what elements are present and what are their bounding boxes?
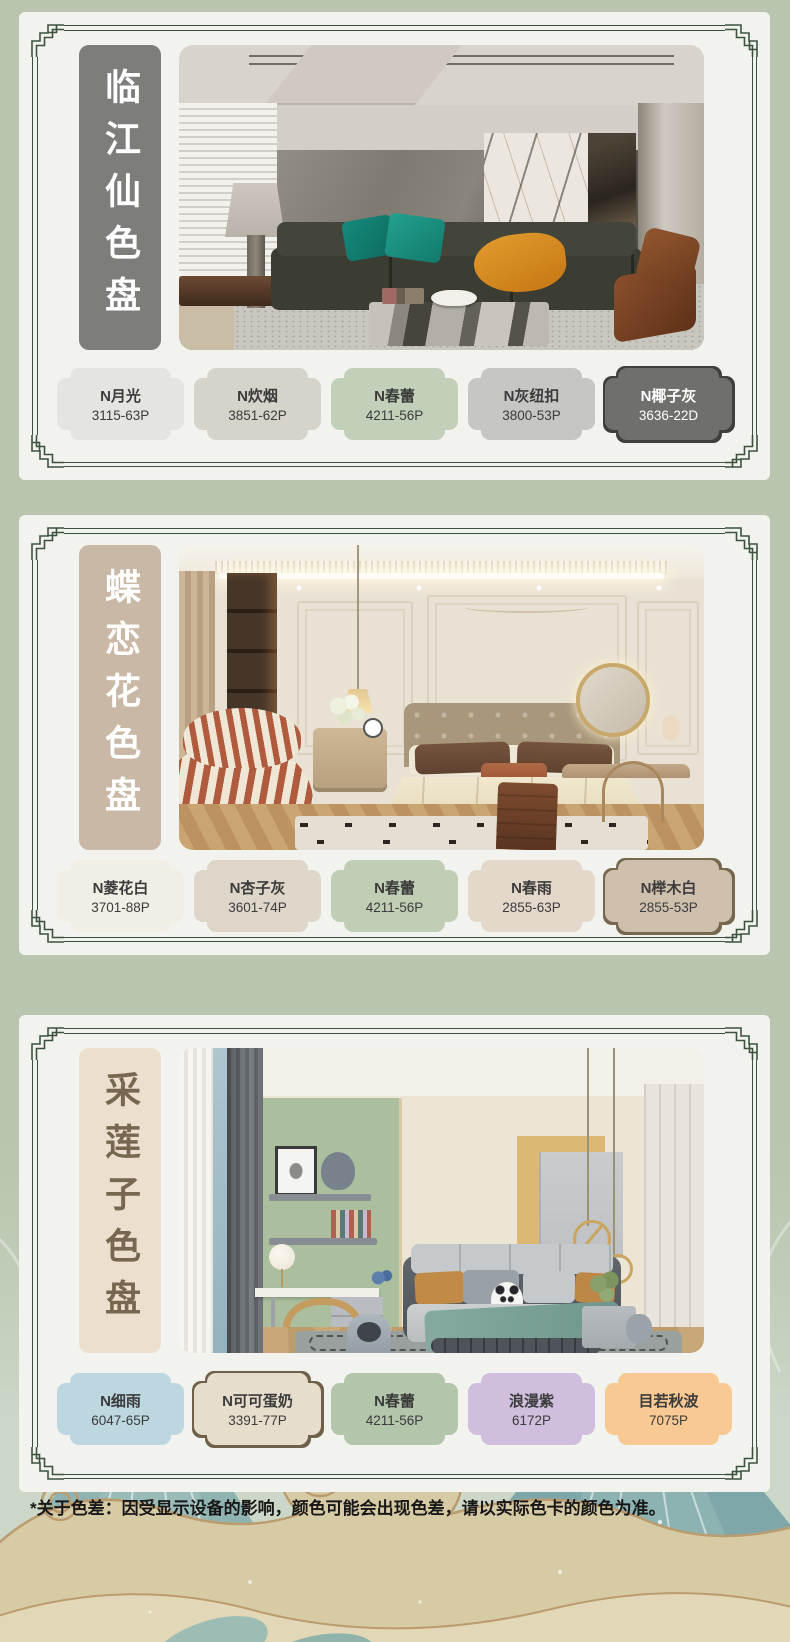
elephant-toy [626, 1314, 652, 1344]
color-code: 2855-63P [502, 900, 561, 915]
color-swatch: N椰子灰 3636-22D [605, 368, 732, 440]
ceiling-bulkhead [266, 45, 461, 103]
color-code: 3851-62P [228, 408, 287, 423]
swatch-text: N春蕾 4211-56P [331, 368, 458, 440]
swatch-row: N月光 3115-63P N炊烟 3851-62P N春蕾 4211-56P [57, 368, 732, 440]
table-decor [382, 288, 424, 304]
palette-title-text: 蝶恋花色盘 [102, 568, 138, 828]
gray-curtain [227, 1048, 263, 1353]
kids-room-photo [179, 1048, 704, 1353]
swatch-text: N灰纽扣 3800-53P [468, 368, 595, 440]
color-name: N细雨 [100, 1390, 141, 1411]
color-code: 3601-74P [228, 900, 287, 915]
color-code: 7075P [649, 1413, 688, 1428]
pendant-cord [587, 1048, 589, 1226]
palette-card-cailianzi: 采莲子色盘 [19, 1015, 770, 1492]
blue-curtain-edge [213, 1048, 227, 1353]
wall-ornament [464, 601, 589, 613]
bedroom-photo [179, 545, 704, 850]
swatch-text: N椰子灰 3636-22D [605, 368, 732, 440]
frame-corner-ornament [24, 520, 64, 560]
vanity-chair [602, 761, 664, 822]
alarm-clock [363, 718, 383, 738]
swatch-text: N细雨 6047-65P [57, 1373, 184, 1445]
blue-flowers [367, 1268, 395, 1290]
color-swatch: N春雨 2855-63P [468, 860, 595, 932]
poster-page: 临江仙色盘 [0, 0, 790, 1642]
color-swatch: N春蕾 4211-56P [331, 860, 458, 932]
dash-pattern-rug [295, 816, 648, 850]
swatch-text: N春蕾 4211-56P [331, 860, 458, 932]
color-name: N可可蛋奶 [222, 1390, 293, 1411]
swatch-text: N杏子灰 3601-74P [194, 860, 321, 932]
color-difference-disclaimer: *关于色差：因受显示设备的影响，颜色可能会出现色差，请以实际色卡的颜色为准。 [30, 1494, 666, 1519]
color-swatch: N炊烟 3851-62P [194, 368, 321, 440]
frame-corner-ornament [24, 1447, 64, 1487]
color-swatch: N榉木白 2855-53P [605, 860, 732, 932]
color-swatch: N杏子灰 3601-74P [194, 860, 321, 932]
color-code: 4211-56P [366, 900, 424, 915]
sheer-curtain [179, 1048, 213, 1353]
wardrobe [644, 1084, 704, 1353]
swatch-text: N炊烟 3851-62P [194, 368, 321, 440]
bunny-plush [662, 715, 680, 741]
swatch-row: N菱花白 3701-88P N杏子灰 3601-74P N春蕾 4211-56P [57, 860, 732, 932]
frame-corner-ornament [24, 1020, 64, 1060]
living-room-photo [179, 45, 704, 350]
color-swatch: N可可蛋奶 3391-77P [194, 1373, 321, 1445]
color-code: 4211-56P [366, 408, 424, 423]
globe-desk-lamp [269, 1244, 295, 1270]
color-swatch: 目若秋波 7075P [605, 1373, 732, 1445]
swatch-text: N榉木白 2855-53P [605, 860, 732, 932]
color-name: N春蕾 [374, 1390, 415, 1411]
floor-lamp-shade [225, 183, 285, 237]
color-code: 6172P [512, 1413, 551, 1428]
color-swatch: N细雨 6047-65P [57, 1373, 184, 1445]
mustard-pillow [414, 1271, 466, 1306]
teal-pillow [384, 212, 446, 263]
color-code: 2855-53P [639, 900, 698, 915]
palette-card-linjiangxian: 临江仙色盘 [19, 12, 770, 480]
round-vanity-mirror [576, 663, 650, 737]
plant [588, 1268, 622, 1308]
leather-lounge-chair [604, 236, 696, 336]
color-swatch: N月光 3115-63P [57, 368, 184, 440]
swatch-row: N细雨 6047-65P N可可蛋奶 3391-77P N春蕾 4211-56P [57, 1373, 732, 1445]
color-code: 6047-65P [91, 1413, 150, 1428]
color-name: 目若秋波 [638, 1390, 698, 1411]
color-swatch: N菱花白 3701-88P [57, 860, 184, 932]
color-code: 3636-22D [639, 408, 698, 423]
picture-frame [275, 1146, 317, 1196]
study-desk [255, 1288, 379, 1297]
color-name: N椰子灰 [641, 385, 697, 406]
frame-corner-ornament [725, 520, 765, 560]
color-code: 3115-63P [92, 408, 150, 423]
color-code: 4211-56P [366, 1413, 424, 1428]
color-name: 浪漫紫 [509, 1390, 554, 1411]
palette-title-text: 采莲子色盘 [102, 1071, 138, 1331]
color-swatch: 浪漫紫 6172P [468, 1373, 595, 1445]
frame-corner-ornament [725, 1447, 765, 1487]
swatch-text: N可可蛋奶 3391-77P [194, 1373, 321, 1445]
pendant-cord [613, 1048, 615, 1258]
color-name: N灰纽扣 [504, 385, 560, 406]
color-name: N月光 [100, 385, 141, 406]
color-code: 3391-77P [228, 1413, 287, 1428]
color-name: N炊烟 [237, 385, 278, 406]
color-code: 3701-88P [91, 900, 150, 915]
color-code: 3800-53P [502, 408, 561, 423]
swatch-text: N春雨 2855-63P [468, 860, 595, 932]
color-name: N菱花白 [93, 877, 149, 898]
palette-title-text: 临江仙色盘 [102, 68, 138, 328]
swatch-text: 目若秋波 7075P [605, 1373, 732, 1445]
plush-toy [321, 1152, 355, 1190]
books [331, 1210, 371, 1238]
palette-title-label: 采莲子色盘 [79, 1048, 161, 1353]
wall-divider-strip [399, 1098, 402, 1353]
robot-toy [347, 1314, 391, 1353]
marble-coffee-table [369, 302, 549, 346]
striped-ball-chair-back [183, 708, 301, 768]
light-pillow [523, 1271, 575, 1303]
nightstand [313, 728, 387, 792]
swatch-text: 浪漫紫 6172P [468, 1373, 595, 1445]
color-name: N杏子灰 [230, 877, 286, 898]
palette-title-label: 蝶恋花色盘 [79, 545, 161, 850]
color-swatch: N春蕾 4211-56P [331, 368, 458, 440]
white-bowl [431, 290, 477, 306]
color-name: N春蕾 [374, 385, 415, 406]
frame-corner-ornament [725, 17, 765, 57]
bed-end-bench [431, 1338, 601, 1353]
color-name: N榉木白 [641, 877, 697, 898]
color-name: N春蕾 [374, 877, 415, 898]
wall-shelf [269, 1194, 371, 1201]
color-swatch: N灰纽扣 3800-53P [468, 368, 595, 440]
frame-corner-ornament [24, 17, 64, 57]
palette-title-label: 临江仙色盘 [79, 45, 161, 350]
pendant-cord [357, 545, 359, 691]
frame-corner-ornament [725, 1020, 765, 1060]
color-name: N春雨 [511, 877, 552, 898]
swatch-text: N春蕾 4211-56P [331, 1373, 458, 1445]
swatch-text: N月光 3115-63P [57, 368, 184, 440]
brown-throw-blanket [496, 782, 558, 850]
cove-light [219, 573, 664, 579]
color-swatch: N春蕾 4211-56P [331, 1373, 458, 1445]
swatch-text: N菱花白 3701-88P [57, 860, 184, 932]
palette-card-dielianhua: 蝶恋花色盘 [19, 515, 770, 955]
